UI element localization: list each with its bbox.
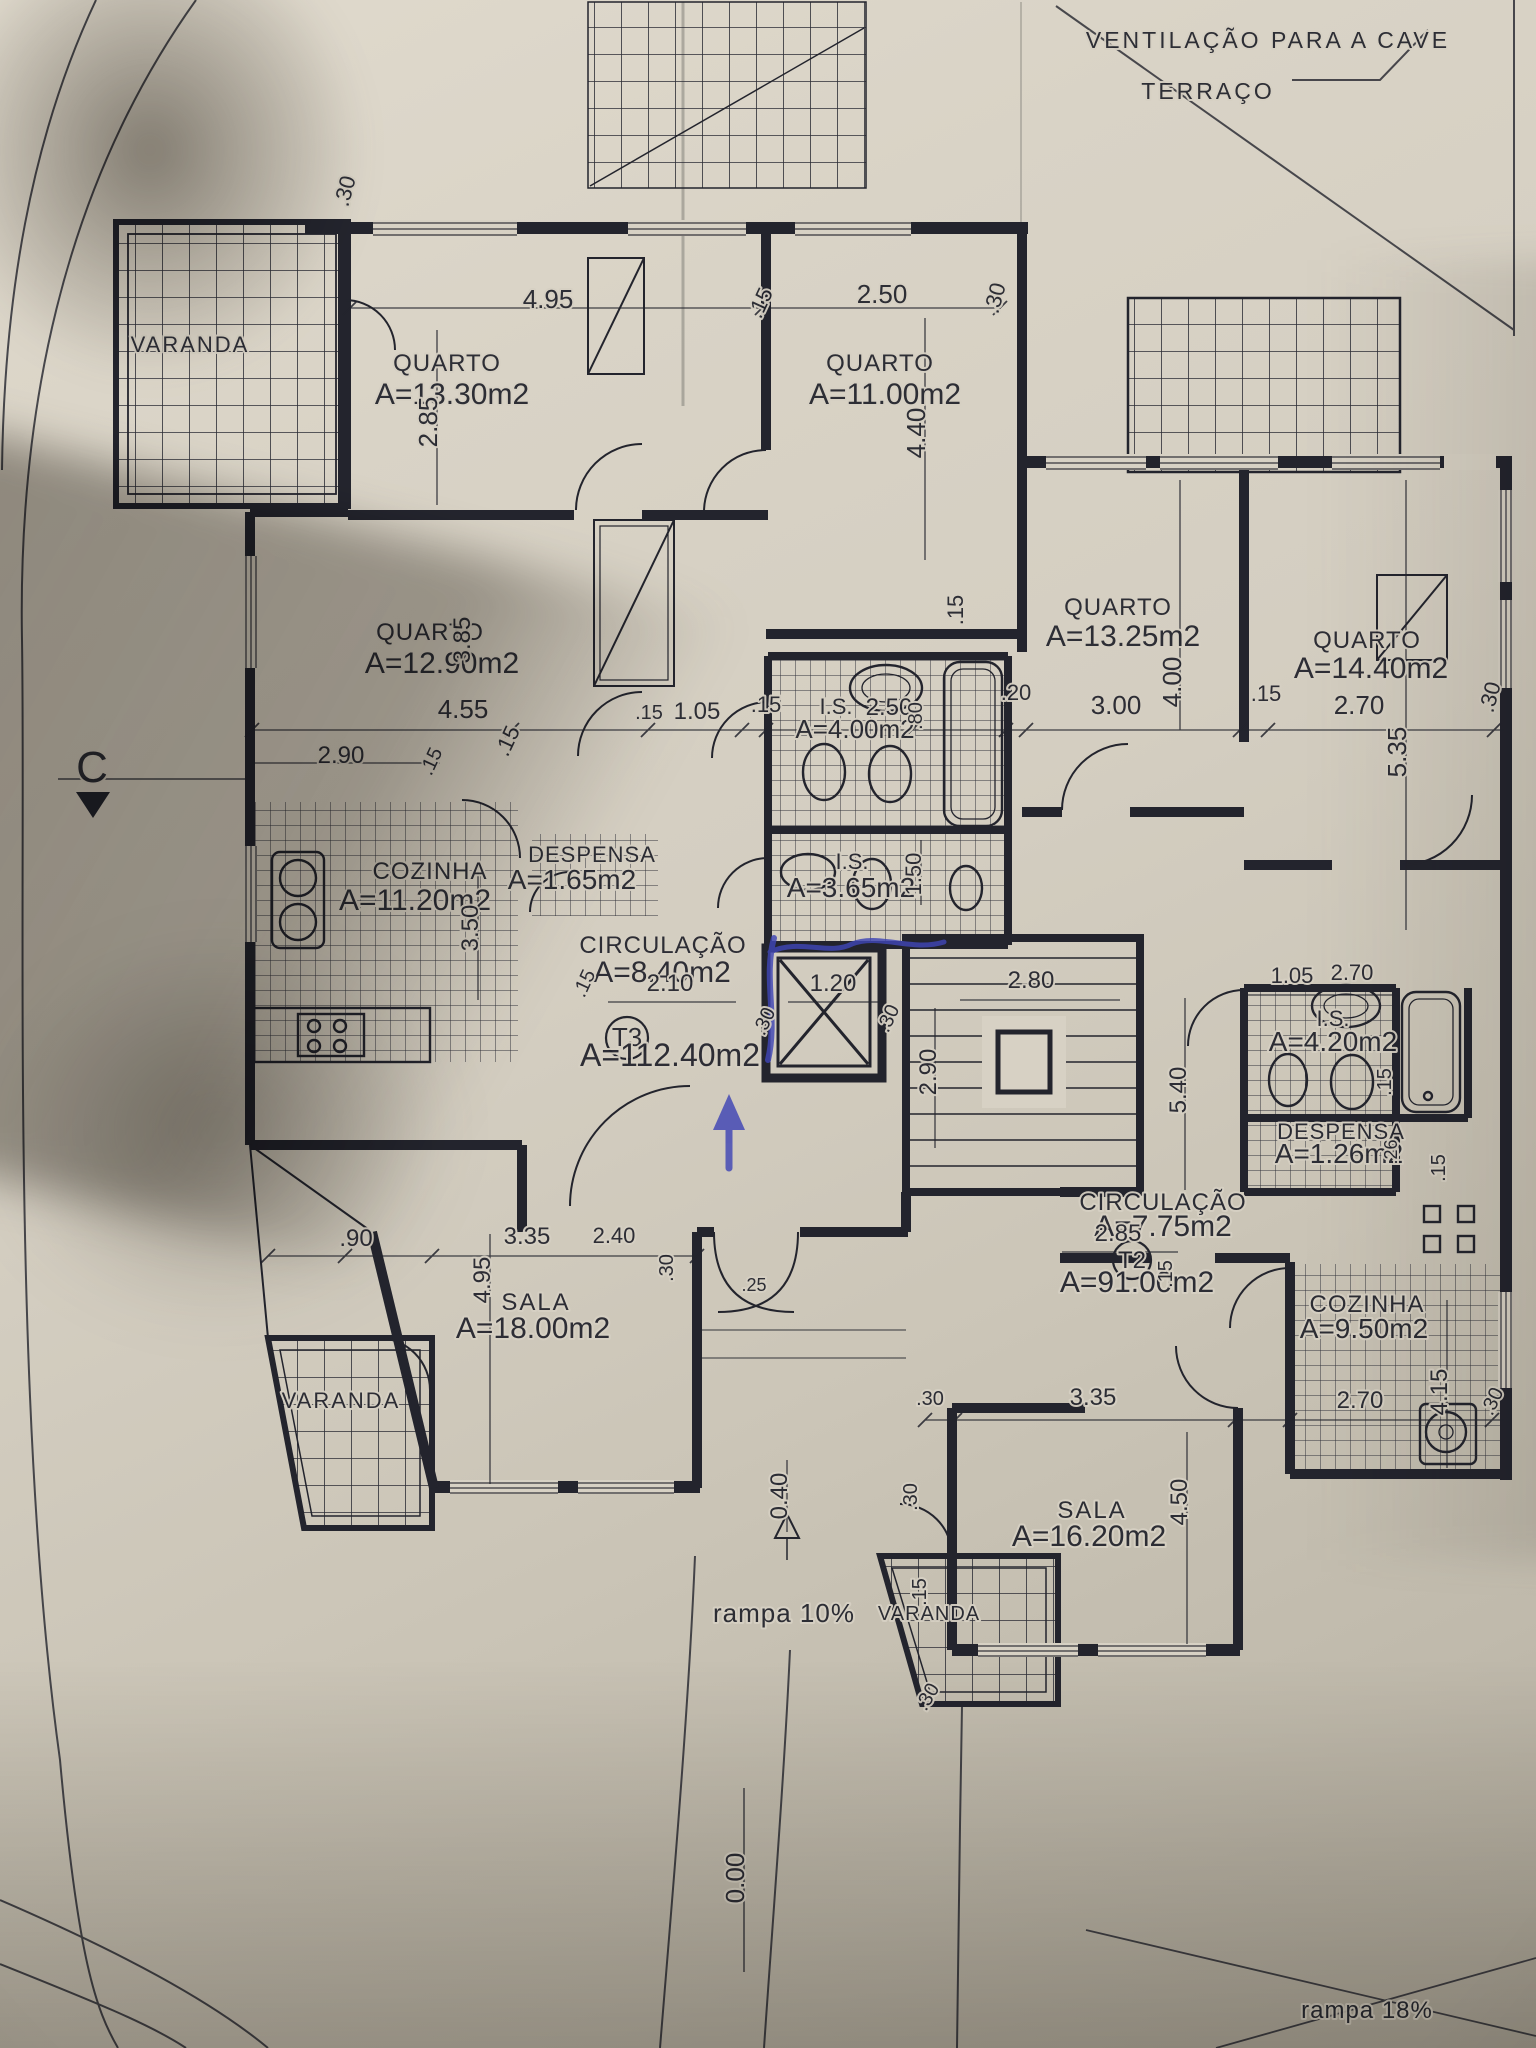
label-dims-47: 4.95 xyxy=(469,1257,496,1304)
label-dims-22: .15 xyxy=(943,595,968,626)
burner-icon xyxy=(1424,1206,1440,1222)
label-dims-0: .30 xyxy=(329,173,361,209)
label-t2-2: QUARTO xyxy=(1313,627,1421,654)
label-t2-3: A=14.40m2 xyxy=(1294,652,1448,685)
label-dims-29: .30 xyxy=(749,1004,781,1039)
label-dims-52: 4.15 xyxy=(1426,1369,1453,1416)
label-dims-48: .30 xyxy=(916,1388,944,1410)
label-dims-37: .15 xyxy=(1374,1068,1396,1096)
label-t3-0: VARANDA xyxy=(131,332,250,357)
label-dims-40: .15 xyxy=(1155,1260,1177,1288)
label-dims-36: 1.50 xyxy=(901,853,926,896)
label-dims-39: .15 xyxy=(1428,1154,1450,1182)
label-dims-15: .20 xyxy=(1001,680,1032,705)
entry-door-left xyxy=(714,1232,794,1312)
terraco-top-right xyxy=(1128,298,1400,472)
entry-steps xyxy=(700,1330,906,1358)
label-t3-21: VARANDA xyxy=(282,1388,401,1413)
label-dims-33: 5.40 xyxy=(1165,1067,1192,1114)
ramp-edge xyxy=(660,1556,695,2048)
label-t2-11: A=91.00m2 xyxy=(1060,1266,1214,1299)
label-t3-16: A=3.65m2 xyxy=(787,872,915,903)
label-dims-32: 2.90 xyxy=(915,1049,942,1096)
label-dims-9: .15 xyxy=(489,722,525,760)
label-t3-15: I.S. xyxy=(835,849,868,874)
label-t3-6: A=12.90m2 xyxy=(365,647,519,680)
label-dims-17: 4.00 xyxy=(1157,657,1187,708)
label-common-1: TERRAÇO xyxy=(1141,78,1274,104)
varanda-top-left xyxy=(116,222,348,506)
label-dims-30: .30 xyxy=(873,1001,905,1036)
label-dims-45: .30 xyxy=(656,1254,678,1282)
label-dims-34: 1.05 xyxy=(1271,963,1314,988)
label-common-0: VENTILAÇÃO PARA A CAVE xyxy=(1086,27,1450,53)
label-common-6: 0.00 xyxy=(720,1853,750,1904)
label-common-3: rampa 18% xyxy=(1301,1997,1433,2024)
label-t2-15: A=16.20m2 xyxy=(1012,1520,1166,1553)
label-dims-6: 4.40 xyxy=(901,408,931,459)
label-dims-20: 5.35 xyxy=(1382,727,1412,778)
label-dims-10: .15 xyxy=(635,702,663,724)
entry-door-right xyxy=(718,1232,798,1312)
label-t3-2: A=13.30m2 xyxy=(375,378,529,411)
label-dims-28: 1.20 xyxy=(810,970,857,997)
label-common-5: 0.40 xyxy=(766,1473,793,1520)
label-dims-31: 2.80 xyxy=(1008,967,1055,994)
label-dims-50: 2.70 xyxy=(1337,1387,1384,1414)
label-dims-44: 2.40 xyxy=(593,1223,636,1248)
floor-plan-drawing: VARANDAQUARTOA=13.30m2QUARTOA=11.00m2QUA… xyxy=(0,0,1536,2048)
label-dims-55: .15 xyxy=(909,1578,931,1606)
label-dims-27: 2.10 xyxy=(647,970,694,997)
label-dims-35: 2.70 xyxy=(1331,960,1374,985)
label-t3-18: A=112.40m2 xyxy=(580,1037,760,1073)
pen-arrow-head xyxy=(713,1094,745,1130)
label-dims-4: 2.50 xyxy=(857,279,908,309)
label-t2-5: A=4.20m2 xyxy=(1269,1026,1397,1057)
burner-icon xyxy=(1424,1236,1440,1252)
label-dims-2: 2.85 xyxy=(413,397,443,448)
label-t3-4: A=11.00m2 xyxy=(809,378,961,411)
burner-icon xyxy=(1458,1206,1474,1222)
label-dims-7: 3.85 xyxy=(449,617,476,664)
varanda-bottom-right xyxy=(880,1556,1058,1704)
label-dims-19: 2.70 xyxy=(1334,690,1385,720)
ramp-edge xyxy=(957,1706,962,2048)
label-t3-1: QUARTO xyxy=(393,350,501,377)
label-dims-11: 1.05 xyxy=(674,698,721,725)
label-dims-25: 3.50 xyxy=(457,905,484,952)
label-t3-10: A=1.65m2 xyxy=(508,864,636,895)
label-dims-43: 3.35 xyxy=(504,1223,551,1250)
label-dims-5: .30 xyxy=(979,280,1011,316)
ramp-edge xyxy=(764,1650,790,2048)
label-dims-49: 3.35 xyxy=(1070,1384,1117,1411)
label-dims-23: 2.90 xyxy=(318,742,365,769)
label-dims-53: 4.50 xyxy=(1166,1479,1193,1526)
label-dims-42: .90 xyxy=(339,1225,372,1252)
label-dims-16: 3.00 xyxy=(1091,690,1142,720)
terraco-top-middle xyxy=(588,2,866,188)
label-t2-1: A=13.25m2 xyxy=(1046,620,1200,653)
floor-plan-photo: VARANDAQUARTOA=13.30m2QUARTOA=11.00m2QUA… xyxy=(0,0,1536,2048)
pen-stroke xyxy=(768,938,774,1060)
label-dims-12: .15 xyxy=(751,692,782,717)
label-dims-18: .15 xyxy=(1251,681,1282,706)
label-dims-8: 4.55 xyxy=(438,694,489,724)
label-dims-3: .15 xyxy=(742,284,778,322)
label-dims-54: .30 xyxy=(900,1483,922,1511)
label-t3-7: COZINHA xyxy=(373,858,488,885)
label-dims-24: .15 xyxy=(416,744,448,779)
section-marker-triangle xyxy=(76,792,110,818)
label-dims-38: .26 xyxy=(1381,1139,1401,1164)
label-common-4: C xyxy=(76,743,108,792)
label-dims-46: .25 xyxy=(741,1275,766,1295)
label-t3-11: CIRCULAÇÃO xyxy=(579,932,746,959)
label-dims-14: .80 xyxy=(905,702,927,730)
label-t3-20: A=18.00m2 xyxy=(456,1312,610,1345)
label-dims-41: 2.85 xyxy=(1095,1220,1142,1247)
label-t3-3: QUARTO xyxy=(826,350,934,377)
label-dims-1: 4.95 xyxy=(523,284,574,314)
burner-icon xyxy=(1458,1236,1474,1252)
label-t2-0: QUARTO xyxy=(1064,594,1172,621)
label-t2-13: A=9.50m2 xyxy=(1300,1313,1428,1344)
label-common-2: rampa 10% xyxy=(713,1598,855,1628)
